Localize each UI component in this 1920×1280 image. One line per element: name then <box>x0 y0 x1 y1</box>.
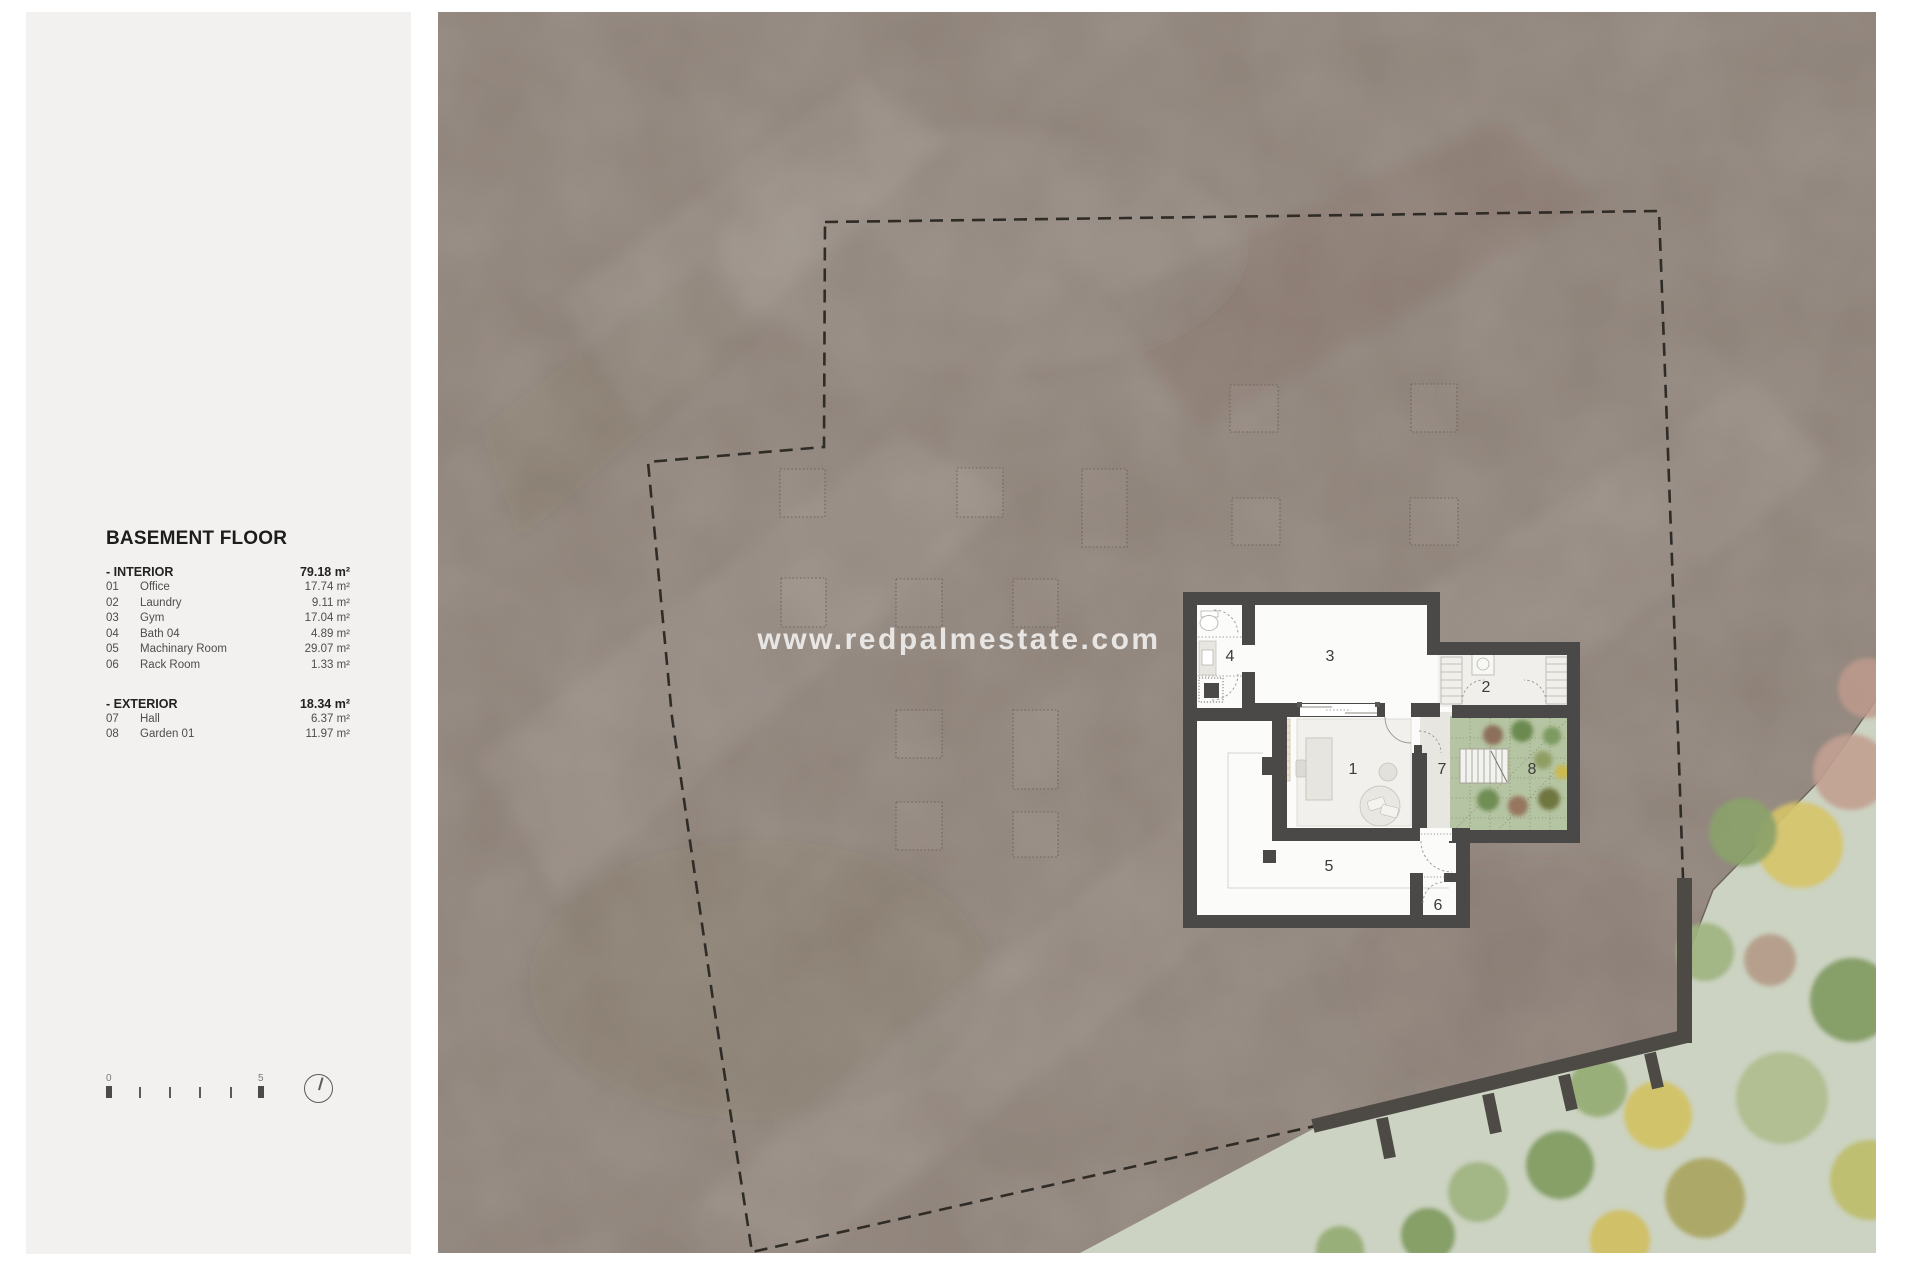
room-label-8: 8 <box>1528 761 1537 778</box>
scale-label-end: 5 <box>258 1073 264 1084</box>
room-label-3: 3 <box>1326 648 1335 665</box>
interior-label: - INTERIOR <box>106 565 173 579</box>
interior-total: 79.18 m² <box>300 565 350 579</box>
desk-chair <box>1296 760 1306 777</box>
exterior-header: - EXTERIOR 18.34 m² <box>106 697 350 711</box>
legend-row: 06 Rack Room 1.33 m² <box>106 658 350 674</box>
scale-label-start: 0 <box>106 1073 112 1084</box>
room-label-1: 1 <box>1349 761 1358 778</box>
legend: BASEMENT FLOOR - INTERIOR 79.18 m² 01 Of… <box>106 528 350 743</box>
legend-row: 03 Gym 17.04 m² <box>106 611 350 627</box>
room-number: 07 <box>106 712 140 728</box>
desk <box>1306 738 1332 800</box>
room-name: Hall <box>140 712 311 728</box>
room-area: 6.37 m² <box>311 712 350 728</box>
room-label-4: 4 <box>1226 648 1235 665</box>
scale-tick <box>139 1087 141 1098</box>
room-name: Gym <box>140 611 305 627</box>
north-compass-icon <box>304 1074 333 1103</box>
scale-tick <box>258 1086 264 1098</box>
room-label-2: 2 <box>1482 679 1491 696</box>
room-number: 02 <box>106 596 140 612</box>
room-area: 17.74 m² <box>305 580 350 596</box>
scale-tick <box>169 1087 171 1098</box>
watermark: www.redpalmestate.com <box>756 623 1160 656</box>
washer <box>1472 654 1494 675</box>
room-area: 1.33 m² <box>311 658 350 674</box>
room-label-6: 6 <box>1434 897 1443 914</box>
room-area: 9.11 m² <box>312 596 350 612</box>
legend-row: 02 Laundry 9.11 m² <box>106 596 350 612</box>
room-area: 17.04 m² <box>305 611 350 627</box>
room-number: 03 <box>106 611 140 627</box>
room-name: Machinary Room <box>140 642 305 658</box>
exterior-total: 18.34 m² <box>300 697 350 711</box>
room-name: Rack Room <box>140 658 311 674</box>
scale-tick <box>199 1087 201 1098</box>
sidebar-panel: BASEMENT FLOOR - INTERIOR 79.18 m² 01 Of… <box>26 12 411 1254</box>
room-number: 01 <box>106 580 140 596</box>
room-number: 08 <box>106 727 140 743</box>
room-area: 4.89 m² <box>311 627 350 643</box>
legend-row: 05 Machinary Room 29.07 m² <box>106 642 350 658</box>
room-name: Garden 01 <box>140 727 305 743</box>
room-number: 05 <box>106 642 140 658</box>
room-number: 04 <box>106 627 140 643</box>
legend-row: 01 Office 17.74 m² <box>106 580 350 596</box>
room-name: Laundry <box>140 596 312 612</box>
room-label-7: 7 <box>1438 761 1447 778</box>
office-room <box>1279 719 1411 826</box>
legend-row: 08 Garden 01 11.97 m² <box>106 727 350 743</box>
stairs <box>1460 749 1508 783</box>
legend-row: 04 Bath 04 4.89 m² <box>106 627 350 643</box>
exterior-label: - EXTERIOR <box>106 697 178 711</box>
page-title: BASEMENT FLOOR <box>106 528 350 550</box>
site-map: 1 2 3 4 5 6 7 8 www.redpalmestate.com <box>438 12 1876 1253</box>
plan-sheet: BASEMENT FLOOR - INTERIOR 79.18 m² 01 Of… <box>0 0 1920 1280</box>
sliding-window <box>1297 702 1380 716</box>
compass-needle <box>318 1077 323 1090</box>
room-label-5: 5 <box>1325 858 1334 875</box>
room-area: 11.97 m² <box>305 727 350 743</box>
interior-header: - INTERIOR 79.18 m² <box>106 565 350 579</box>
room-name: Bath 04 <box>140 627 311 643</box>
legend-row: 07 Hall 6.37 m² <box>106 712 350 728</box>
scale-tick <box>106 1086 112 1098</box>
side-table <box>1379 763 1397 781</box>
room-name: Office <box>140 580 305 596</box>
room-number: 06 <box>106 658 140 674</box>
scale-tick <box>230 1087 232 1098</box>
room-area: 29.07 m² <box>305 642 350 658</box>
